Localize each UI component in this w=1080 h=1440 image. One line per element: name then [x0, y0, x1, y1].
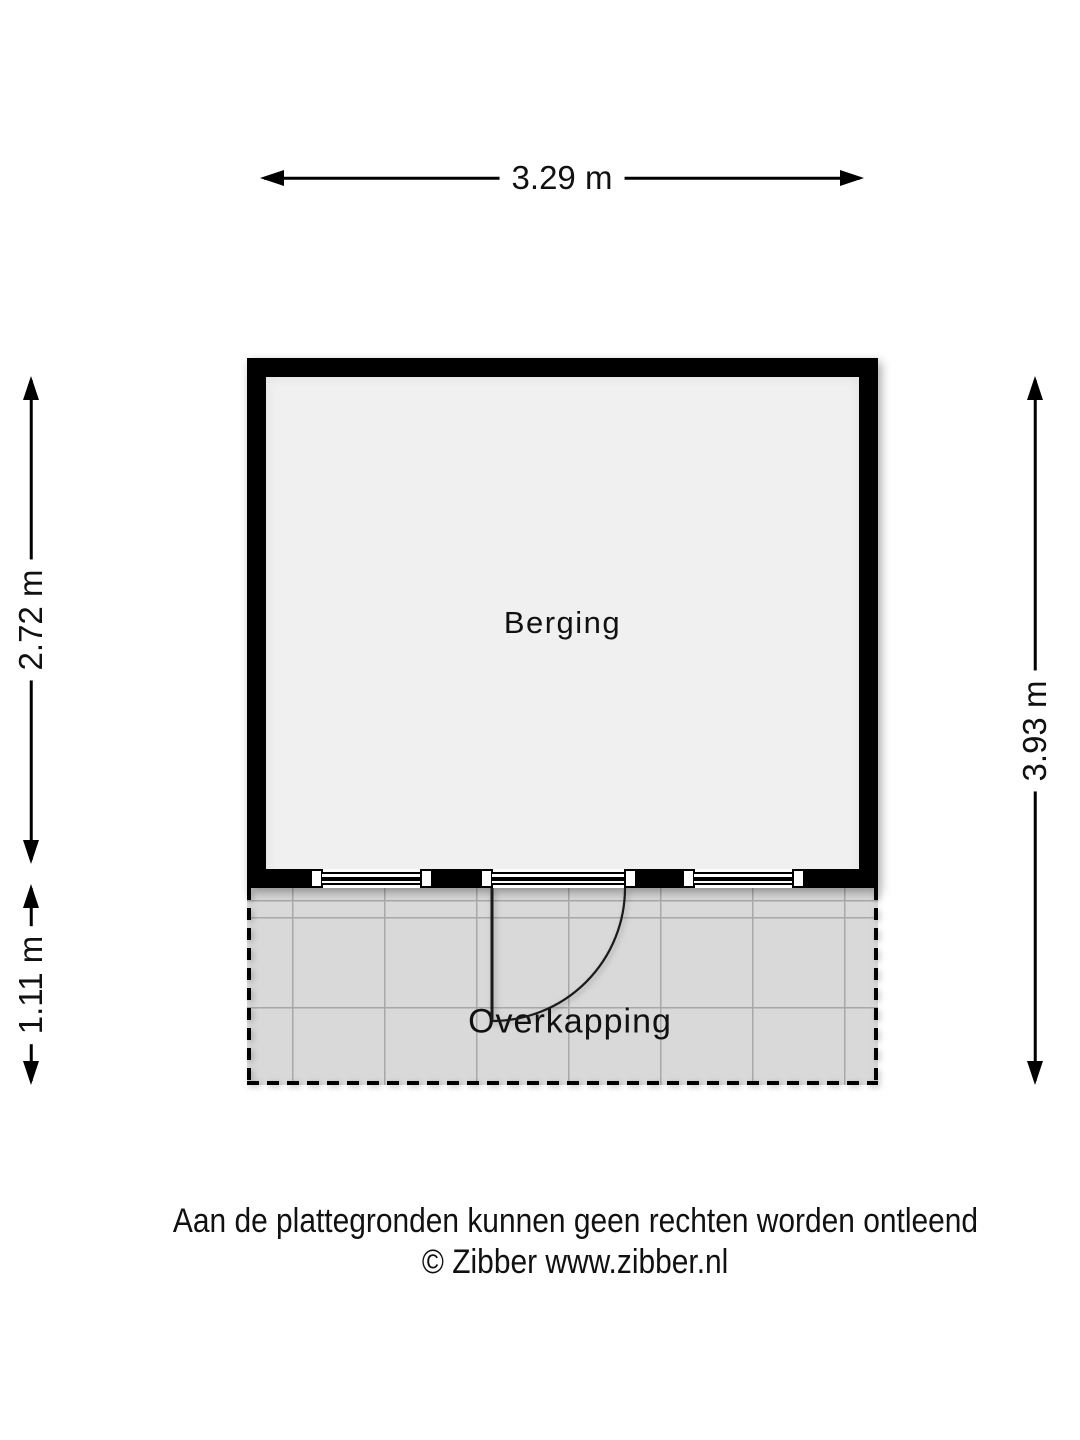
room-label: Berging	[504, 605, 621, 641]
wall-segment	[805, 869, 878, 888]
dimension-label: 3.93 m	[1016, 670, 1054, 791]
copyright-text: © Zibber www.zibber.nl	[70, 1242, 1080, 1283]
canopy-label: Overkapping	[468, 1003, 672, 1042]
dimension-label: 3.29 m	[500, 159, 625, 197]
arrow-down-icon	[23, 840, 39, 864]
arrow-right-icon	[840, 170, 864, 186]
glazed-door	[480, 869, 637, 888]
dimension-left-canopy-depth: 1.11 m	[18, 884, 44, 1085]
floor-plan-canvas: 3.29 m 2.72 m 1.11 m 3.93 m Overkapping …	[0, 0, 1080, 1440]
arrow-up-icon	[23, 884, 39, 908]
dimension-left-berging-depth: 2.72 m	[18, 376, 44, 864]
arrow-left-icon	[260, 170, 284, 186]
dimension-right-total-depth: 3.93 m	[1022, 376, 1048, 1085]
dimension-label: 2.72 m	[12, 560, 50, 681]
window-glazing	[322, 872, 421, 885]
dimension-label: 1.11 m	[12, 925, 50, 1043]
door-jamb	[624, 869, 637, 888]
window-left	[310, 869, 433, 888]
arrow-down-icon	[1027, 1061, 1043, 1085]
bottom-wall	[247, 869, 878, 888]
dimension-top-width: 3.29 m	[260, 165, 864, 191]
arrow-down-icon	[23, 1061, 39, 1085]
door-glazing	[492, 872, 625, 885]
footer: Aan de plattegronden kunnen geen rechten…	[70, 1201, 1080, 1283]
window-right	[682, 869, 805, 888]
arrow-up-icon	[23, 376, 39, 400]
wall-segment	[637, 869, 682, 888]
window-jamb	[792, 869, 805, 888]
window-glazing	[694, 872, 793, 885]
berging-room: Berging	[247, 358, 878, 888]
window-jamb	[420, 869, 433, 888]
overkapping-area: Overkapping	[247, 888, 878, 1085]
arrow-up-icon	[1027, 376, 1043, 400]
disclaimer-text: Aan de plattegronden kunnen geen rechten…	[70, 1201, 1080, 1242]
wall-segment	[247, 869, 310, 888]
wall-segment	[433, 869, 480, 888]
